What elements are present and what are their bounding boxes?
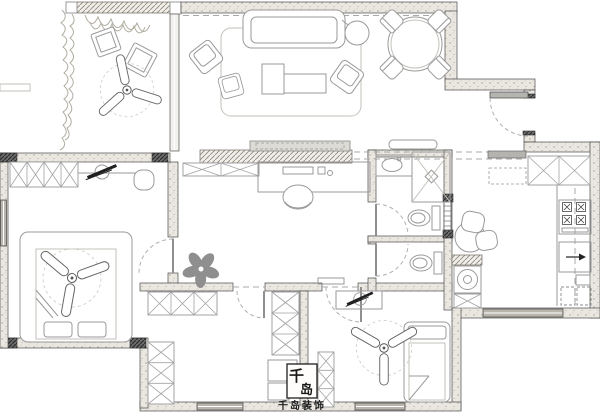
balcony-post-right	[170, 2, 181, 14]
bedroom3-desk	[336, 291, 382, 309]
balcony-top-wall	[77, 2, 171, 13]
bathroom-top-wall	[368, 150, 452, 157]
entry-jamb-tick-bottom	[523, 131, 535, 135]
bathroom-left-wall-c	[368, 278, 376, 291]
kitchen-sink-icon	[559, 242, 591, 272]
bedroom2-door	[237, 291, 264, 318]
coffee-table	[262, 64, 326, 94]
bedroom-three	[318, 291, 450, 407]
watermark-caption: 千岛装饰	[278, 399, 326, 412]
bedroom2-top-wall-a	[140, 283, 233, 291]
shelf-plant-icon	[84, 163, 117, 180]
kitchen-window	[483, 309, 563, 317]
washing-machine-icon	[452, 255, 482, 308]
bathroom-door	[376, 204, 408, 236]
kitchen-appliance	[576, 275, 590, 285]
bedroom2-left-wall	[140, 348, 148, 408]
master-window	[1, 200, 7, 246]
corner-block-nw2	[152, 153, 168, 162]
watermark-stamp: 千 岛	[287, 364, 317, 398]
right-step-wall-h	[445, 79, 535, 90]
kitchen-dashed-unit-2	[577, 287, 591, 305]
master-chair	[134, 170, 154, 190]
toilet-icon	[408, 206, 440, 230]
desk-plant-icon	[344, 291, 374, 307]
breakfast-table	[455, 210, 499, 252]
stamp-char-bottom: 岛	[300, 382, 313, 398]
ottoman	[217, 72, 244, 99]
wc-door	[376, 244, 408, 276]
planter-box	[0, 84, 30, 91]
master-left-wall	[0, 153, 8, 348]
master-right-wall-upper	[168, 162, 178, 237]
master-door	[139, 239, 173, 273]
entry-door-arc	[490, 98, 528, 136]
bathroom-left-wall-a	[368, 150, 376, 202]
dining-chair-sw	[379, 55, 404, 80]
bedroom3-right-wall	[452, 308, 461, 410]
balcony	[0, 10, 171, 150]
balcony-divider-window	[170, 14, 179, 151]
corner-block-nw1	[0, 153, 17, 162]
armchair-right	[329, 59, 365, 95]
kitchen-cabinet-dashed	[489, 168, 526, 184]
balcony-post-left	[66, 2, 77, 13]
bedroom-two	[148, 292, 299, 404]
keyboard	[283, 167, 313, 174]
master-top-wall	[0, 153, 170, 162]
sofa	[243, 10, 345, 48]
bedroom2-top-wall-b	[265, 283, 322, 291]
bedroom3-window	[355, 403, 405, 410]
office-chair	[283, 185, 313, 209]
computer	[318, 167, 325, 174]
tv-cabinet	[250, 141, 350, 151]
master-bedroom	[10, 162, 154, 342]
floor-plan-page: 千 岛 千岛装饰	[0, 0, 600, 418]
armchair-left	[188, 39, 224, 75]
tv-half-wall	[200, 150, 352, 163]
mouse	[328, 171, 333, 176]
wash-basin	[376, 155, 412, 176]
wc-toilet-icon	[410, 252, 442, 274]
kitchen	[488, 151, 591, 306]
master-bed	[20, 232, 132, 342]
sliding-door-jamb-bottom	[443, 230, 453, 238]
corner-block-sw2	[130, 338, 146, 348]
kitchen-dashed-unit-1	[561, 287, 575, 305]
entry-door	[490, 92, 528, 136]
study-desk	[258, 162, 370, 192]
climbing-plant-icon	[60, 10, 68, 150]
sliding-door	[444, 202, 451, 230]
floor-plan-drawing: 千 岛 千岛装饰	[0, 0, 600, 418]
dining-area	[379, 8, 451, 80]
bathroom-divider-wall	[368, 236, 452, 242]
console-shelf	[389, 140, 437, 149]
hallway	[452, 210, 499, 308]
kitchen-shelf	[488, 151, 526, 158]
kitchen-top-wall	[524, 142, 600, 152]
bedroom2-window	[197, 403, 243, 410]
side-table	[342, 20, 369, 45]
living-room	[188, 10, 369, 151]
bedroom3-door	[326, 287, 361, 322]
bathroom	[376, 152, 450, 274]
